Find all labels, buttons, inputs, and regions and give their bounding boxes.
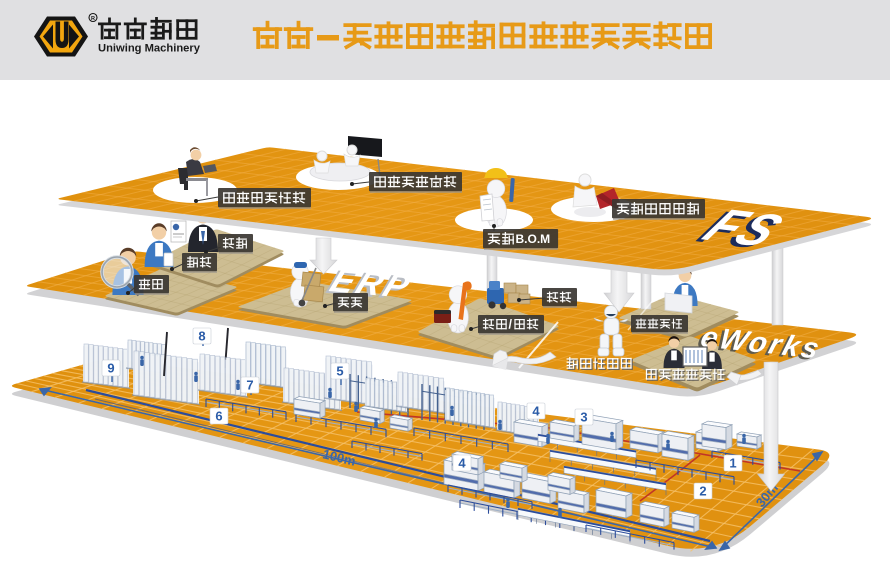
svg-text:4: 4 xyxy=(458,456,466,471)
svg-text:7: 7 xyxy=(246,378,253,393)
svg-text:4: 4 xyxy=(532,404,540,419)
svg-text:R: R xyxy=(91,16,95,22)
svg-text:8: 8 xyxy=(198,329,205,344)
svg-text:3: 3 xyxy=(580,410,587,425)
svg-text:B.O.M: B.O.M xyxy=(516,232,551,246)
svg-text:9: 9 xyxy=(107,361,114,376)
svg-text:5: 5 xyxy=(336,364,343,379)
svg-text:1: 1 xyxy=(729,456,736,471)
svg-text:2: 2 xyxy=(699,484,706,499)
svg-text:6: 6 xyxy=(215,409,222,424)
svg-text:/: / xyxy=(509,318,513,332)
svg-text:Uniwing Machinery: Uniwing Machinery xyxy=(98,43,201,55)
